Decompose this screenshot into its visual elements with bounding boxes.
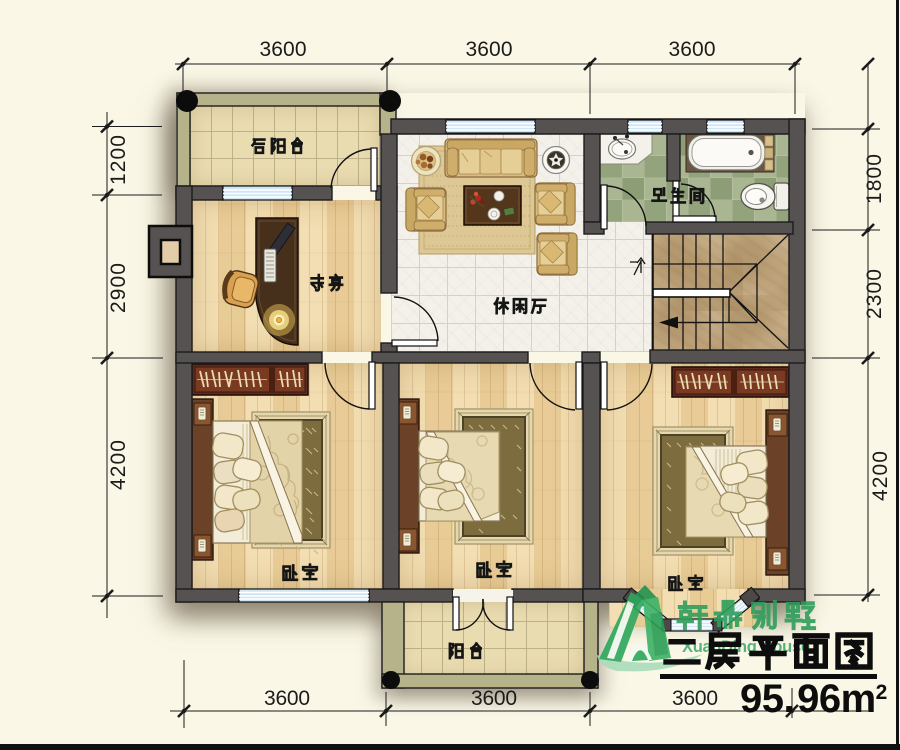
svg-text:1800: 1800 bbox=[863, 154, 886, 204]
svg-text:3600: 3600 bbox=[260, 38, 307, 61]
svg-text:3600: 3600 bbox=[466, 38, 513, 61]
svg-text:1200: 1200 bbox=[107, 135, 130, 185]
svg-text:XuanDing House: XuanDing House bbox=[682, 638, 810, 656]
svg-text:3600: 3600 bbox=[672, 687, 718, 710]
svg-text:3600: 3600 bbox=[669, 38, 716, 61]
svg-text:4200: 4200 bbox=[107, 440, 130, 490]
svg-text:3600: 3600 bbox=[264, 687, 310, 710]
svg-text:4200: 4200 bbox=[869, 451, 892, 501]
svg-text:95.96m2: 95.96m2 bbox=[740, 677, 887, 721]
svg-text:3600: 3600 bbox=[471, 687, 517, 710]
svg-text:2300: 2300 bbox=[863, 269, 886, 319]
svg-text:2900: 2900 bbox=[107, 263, 130, 313]
